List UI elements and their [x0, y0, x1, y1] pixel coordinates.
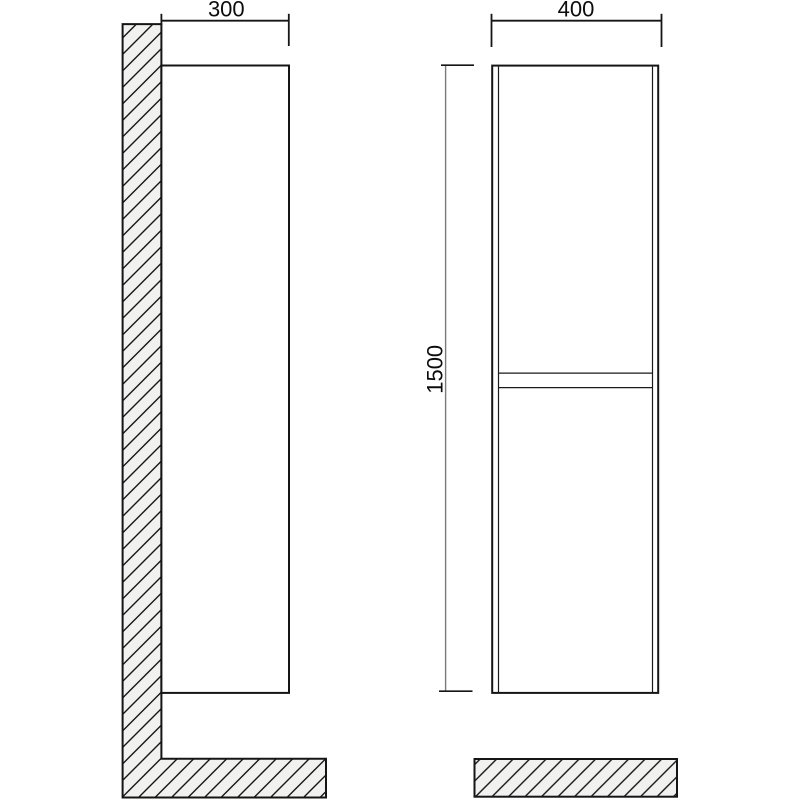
svg-text:400: 400 — [558, 0, 595, 21]
svg-text:1500: 1500 — [423, 345, 448, 394]
svg-text:300: 300 — [208, 0, 245, 21]
